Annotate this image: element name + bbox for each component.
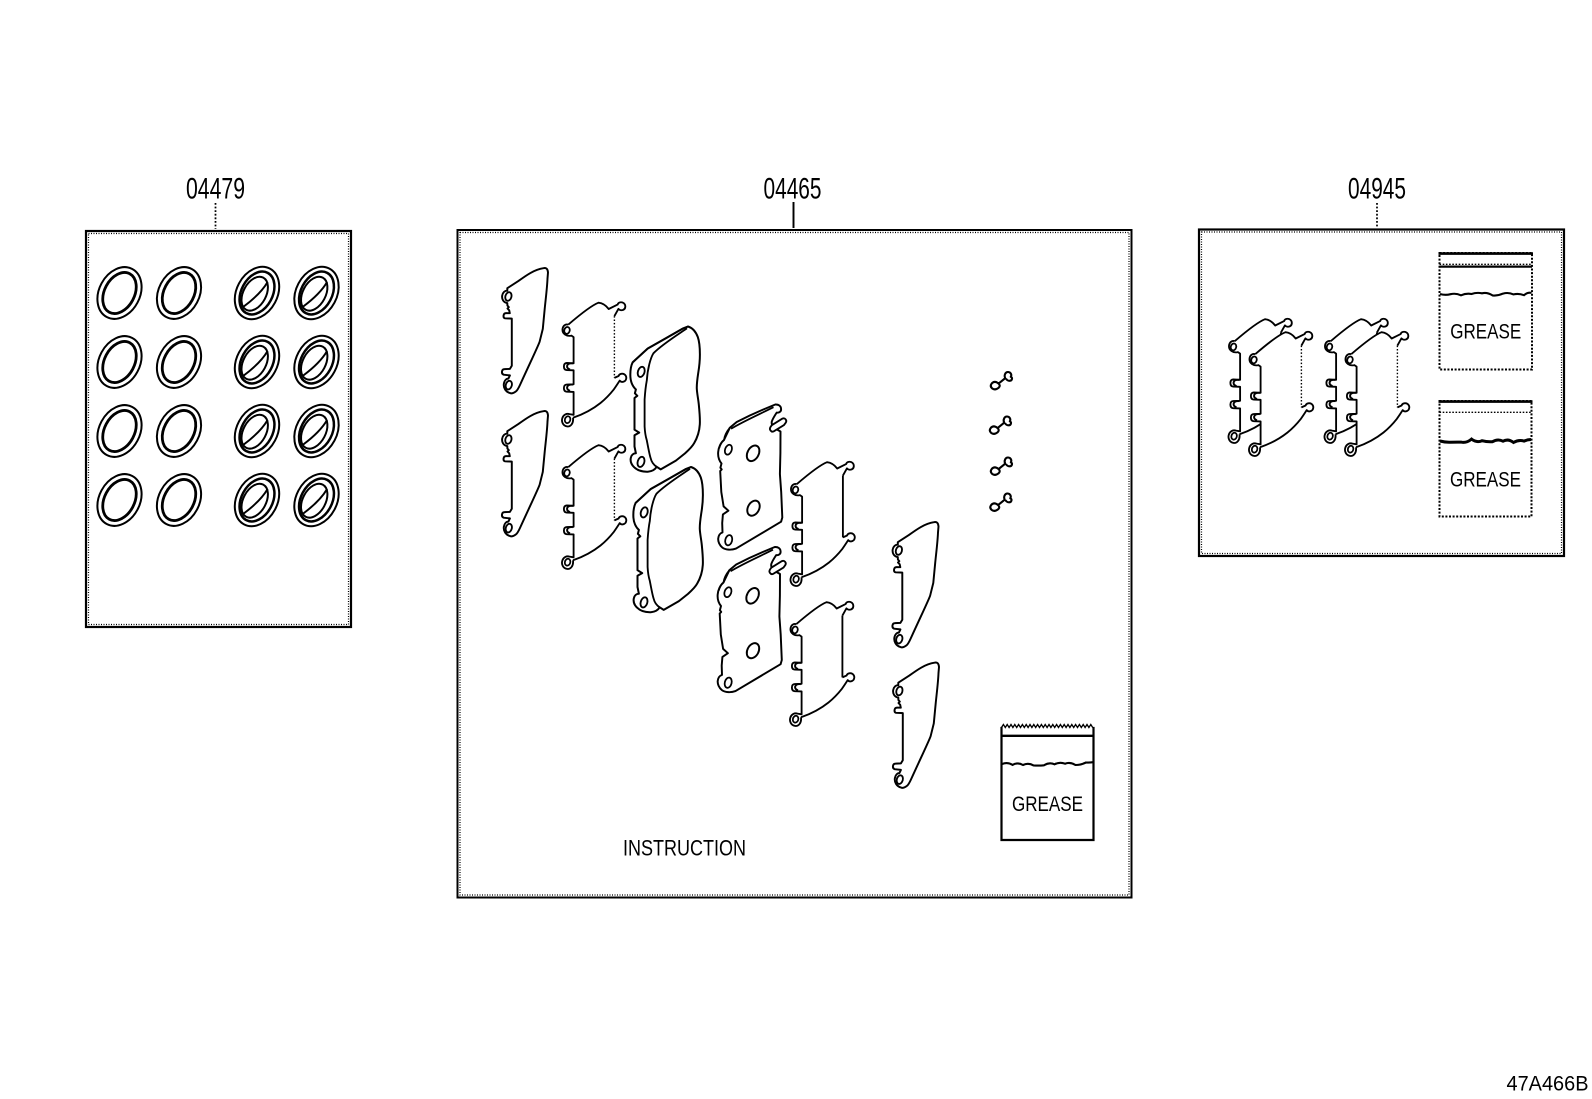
svg-text:04465: 04465 xyxy=(764,173,822,206)
svg-text:GREASE: GREASE xyxy=(1450,469,1521,492)
svg-text:04479: 04479 xyxy=(186,173,245,206)
svg-text:04945: 04945 xyxy=(1348,173,1406,206)
svg-text:GREASE: GREASE xyxy=(1450,321,1521,344)
svg-text:47A466B: 47A466B xyxy=(1507,1072,1589,1096)
svg-text:GREASE: GREASE xyxy=(1012,793,1083,816)
svg-text:INSTRUCTION: INSTRUCTION xyxy=(623,836,746,861)
